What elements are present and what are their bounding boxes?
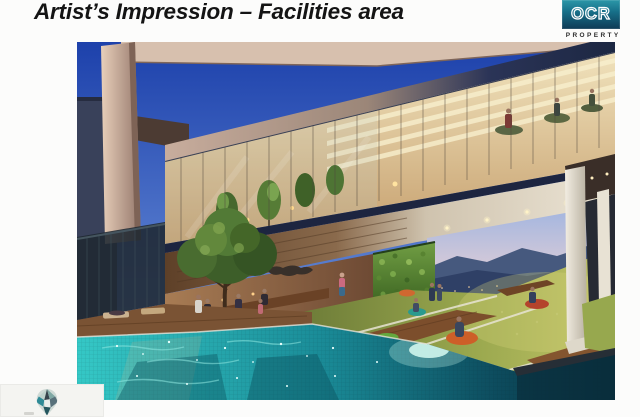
pool-fence — [77, 222, 165, 320]
ocr-property-logo: OCR PROPERTY — [562, 0, 624, 39]
developer-pin-logo — [36, 387, 58, 417]
page-title: Artist’s Impression – Facilities area — [34, 0, 404, 26]
right-terrace — [565, 154, 615, 354]
cutoff-text-smudge — [24, 412, 34, 415]
child-figure — [258, 304, 263, 314]
ocr-logo-mark: OCR — [562, 0, 620, 29]
person-lounging — [109, 311, 125, 316]
facilities-rendering-image — [77, 42, 615, 400]
rendering-scene — [77, 42, 615, 400]
ocr-logo-tagline: PROPERTY — [562, 32, 622, 39]
person-standing-pool — [195, 300, 202, 313]
person-walking — [339, 273, 345, 296]
developer-logo-box — [0, 384, 104, 417]
ocr-logo-text: OCR — [571, 5, 611, 24]
